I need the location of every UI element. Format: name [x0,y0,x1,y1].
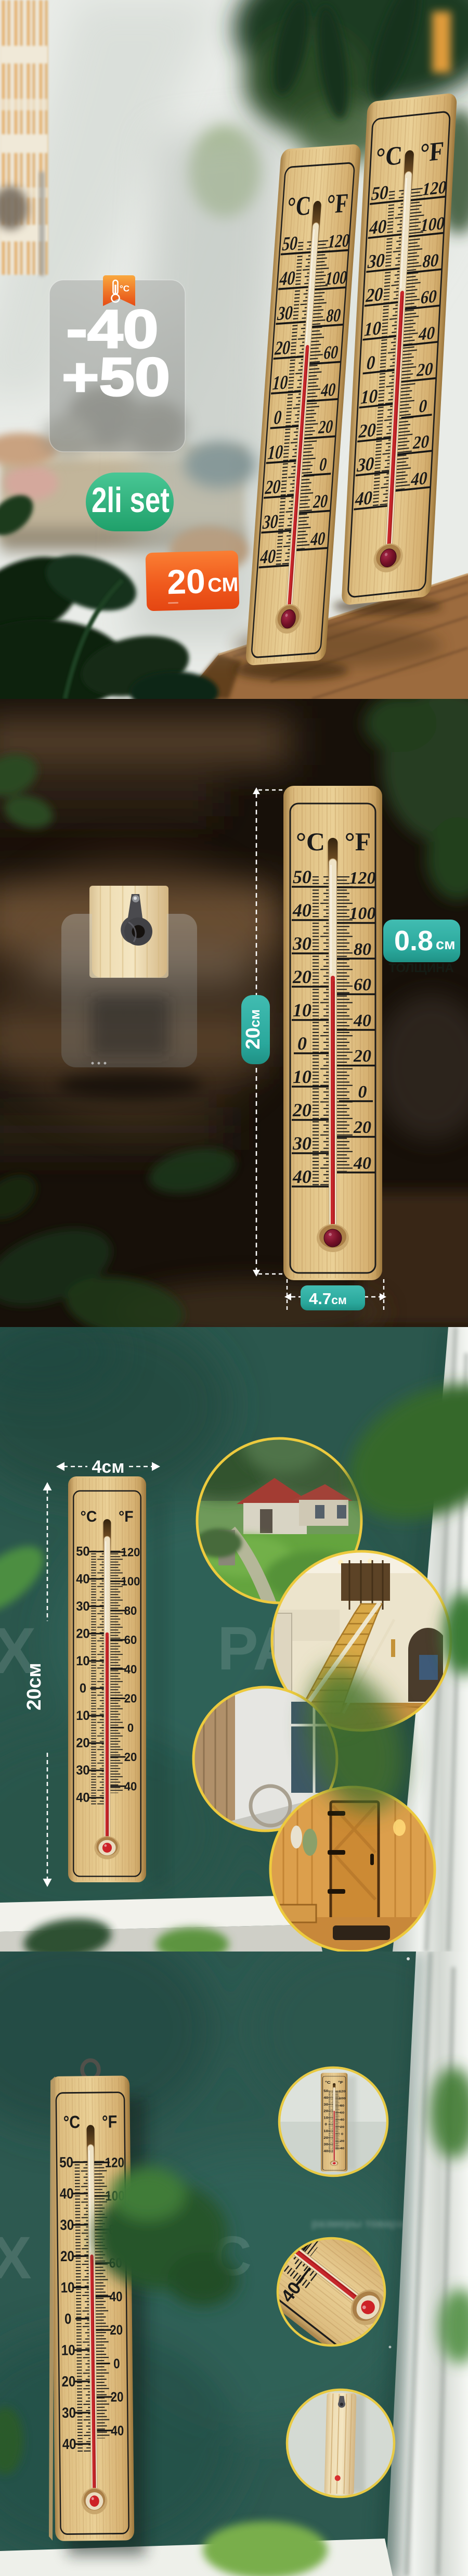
svg-text:2li set: 2li set [92,480,170,520]
svg-text:°C: °C [120,284,129,294]
svg-text:4см: 4см [92,1457,125,1477]
svg-text:+50: +50 [62,347,170,407]
svg-text:20см: 20см [23,1663,45,1711]
svg-text:20: 20 [166,562,205,601]
svg-text:ТОЛЩИНА: ТОЛЩИНА [388,961,453,975]
svg-text:0.8: 0.8 [394,925,433,957]
svg-text:размеры товара: размеры товара [311,2217,405,2230]
svg-text:CM: CM [207,574,239,597]
svg-text:Х: Х [0,2225,32,2291]
svg-text:см: см [436,936,456,953]
